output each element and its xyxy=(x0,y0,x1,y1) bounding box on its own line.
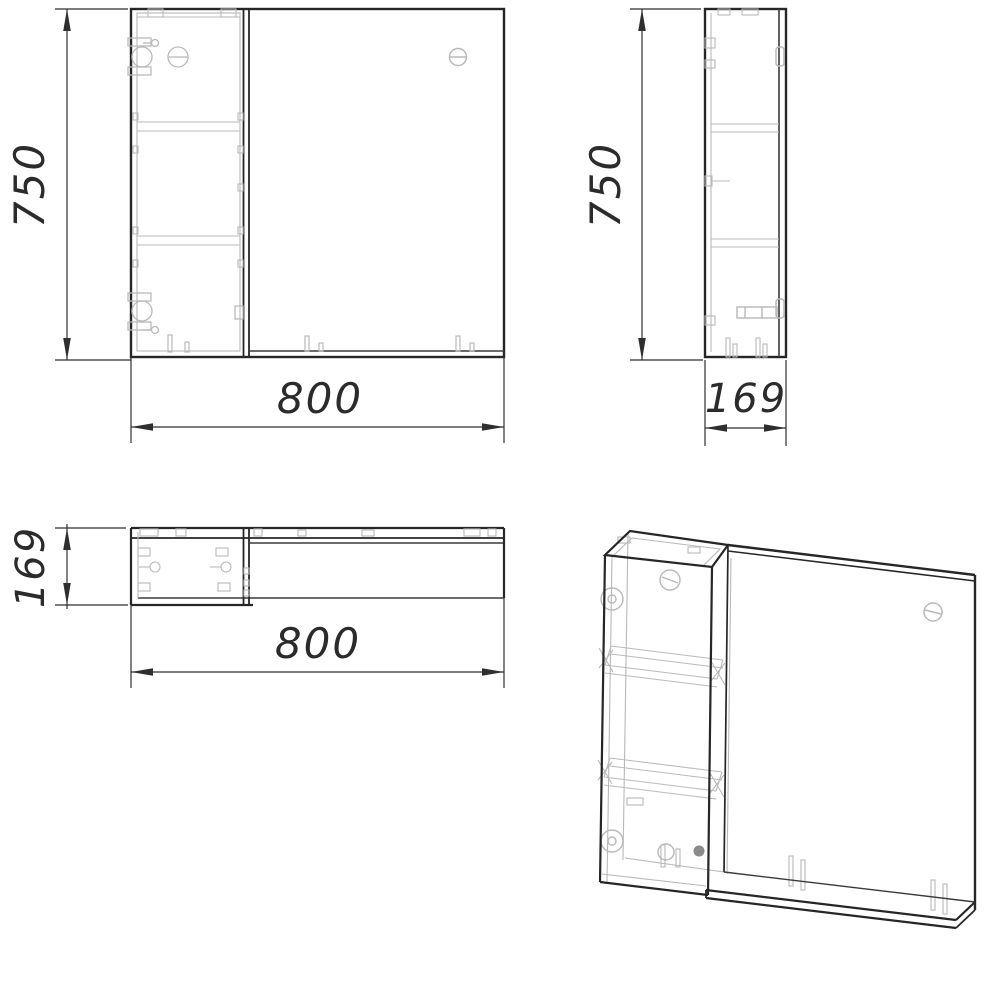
drawing-sheet: 750 800 xyxy=(0,0,1000,1000)
front-height-label: 750 xyxy=(5,142,54,228)
iso-bottom-fastener xyxy=(694,846,705,857)
side-depth-label: 169 xyxy=(705,376,787,422)
front-width-label: 800 xyxy=(277,374,363,423)
sheet-background xyxy=(0,0,1000,1000)
top-depth-label: 169 xyxy=(8,526,54,608)
top-width-label: 800 xyxy=(275,619,361,668)
side-height-label: 750 xyxy=(581,142,630,228)
technical-drawing: 750 800 xyxy=(0,0,1000,1000)
